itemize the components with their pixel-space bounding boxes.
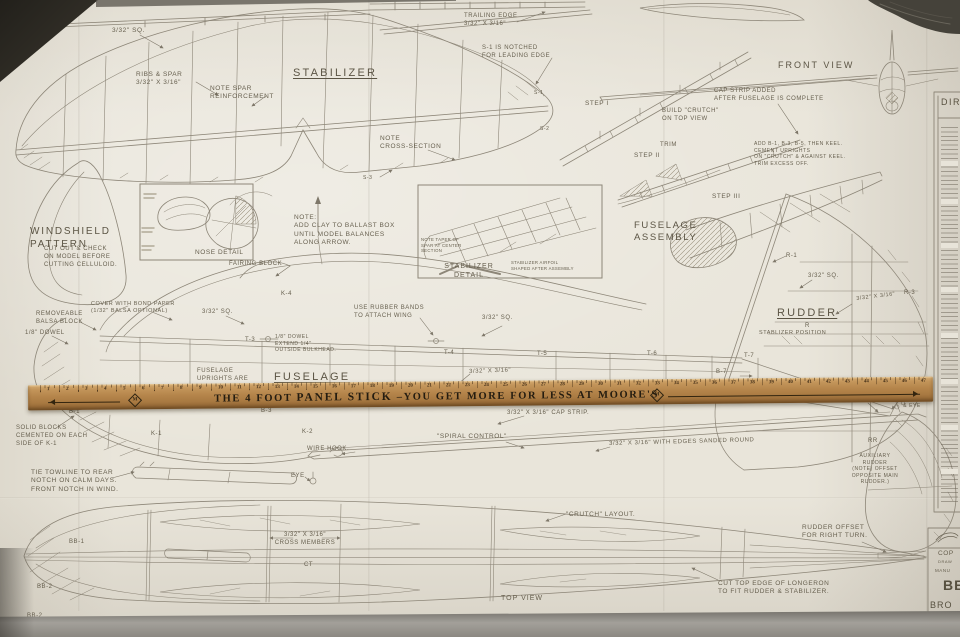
label-r3: R-3: [904, 290, 915, 298]
label-nose-detail: NOSE DETAIL: [195, 249, 244, 257]
ruler-inch-24: 24: [484, 382, 489, 387]
label-solid-blocks: SOLID BLOCKS CEMENTED ON EACH SIDE OF K-…: [16, 425, 87, 448]
ruler-brand-bold: PANEL STICK: [296, 390, 392, 403]
label-spar-reinforcement: NOTE SPAR REINFORCEMENT: [210, 85, 274, 102]
ruler-inch-12: 12: [256, 385, 261, 390]
label-b7: B-7: [716, 369, 727, 377]
ruler-inch-42: 42: [826, 379, 831, 384]
label-s1-tag: S-1: [534, 90, 543, 97]
photo-shadow-corner: [0, 548, 34, 637]
label-s1-notched: S-1 IS NOTCHED FOR LEADING EDGE: [482, 45, 550, 61]
label-cross-members: 3/32" X 3/16" CROSS MEMBERS: [273, 532, 337, 548]
ruler-inch-41: 41: [807, 379, 812, 384]
label-ribs-spar: RIBS & SPAR 3/32" X 3/16": [136, 71, 182, 88]
label-wire-hook: WIRE HOOK.: [307, 446, 349, 454]
label-cap-strip-added: CAP STRIP ADDED AFTER FUSELAGE IS COMPLE…: [714, 88, 824, 104]
label-cap-strip: 3/32" X 3/16" CAP STRIP.: [507, 410, 589, 418]
ruler-inch-3: 3: [85, 386, 88, 391]
ruler-inch-18: 18: [370, 384, 375, 389]
ruler-inch-35: 35: [693, 380, 698, 385]
label-dowel-extend: 1/8" DOWEL EXTEND 1/4" OUTSIDE BULKHEAD.: [275, 334, 336, 354]
ruler-inch-11: 11: [237, 385, 242, 390]
label-b1: B-1: [69, 409, 80, 417]
label-fairing-block: FAIRING BLOCK: [229, 261, 282, 269]
ruler-brand-suffix: –YOU GET MORE FOR LESS AT MOORE'S: [392, 389, 659, 403]
label-removable-block: REMOVEABLE BALSA BLOCK: [36, 311, 83, 327]
label-square-left: 3/32" SQ.: [202, 309, 233, 317]
label-titleblock-5: BRO: [930, 600, 953, 612]
ruler-inch-33: 33: [655, 381, 660, 386]
fuselage-belly-drawing: [60, 404, 926, 484]
label-build-crutch: BUILD "CRUTCH" ON TOP VIEW: [662, 108, 719, 124]
ruler-inch-30: 30: [598, 381, 603, 386]
label-taper-note: NOTE TAPER OF SPAR AT CENTER SECTION: [421, 237, 462, 254]
label-rubber-bands: USE RUBBER BANDS TO ATTACH WING: [354, 305, 424, 321]
label-titleblock-4: BE: [943, 576, 960, 594]
ruler-inch-20: 20: [408, 383, 413, 388]
photographed-plan: 3/32" SQ. RIBS & SPAR 3/32" X 3/16" NOTE…: [0, 0, 960, 637]
ruler-inch-21: 21: [427, 383, 432, 388]
ruler-inch-1: 1: [47, 387, 50, 392]
ruler-inch-32: 32: [636, 381, 641, 386]
label-k4: K-4: [281, 291, 292, 299]
ruler-inch-26: 26: [522, 382, 527, 387]
label-uprights: FUSELAGE UPRIGHTS ARE: [197, 368, 248, 384]
ruler-inch-17: 17: [351, 384, 356, 389]
label-aux-rudder-note: AUXILIARY RUDDER (NOTE) OFFSET OPPOSITE …: [843, 453, 907, 486]
label-top-view: TOP VIEW: [501, 594, 543, 603]
label-eye: EYE: [291, 473, 305, 481]
label-t6: T-6: [647, 351, 657, 359]
ruler-inch-19: 19: [389, 383, 394, 388]
label-rr: RR: [868, 438, 878, 446]
ruler-inch-5: 5: [123, 386, 126, 391]
directions-text-lines: [941, 127, 958, 505]
ruler-logo-right: M: [650, 388, 664, 402]
label-s3-tag: S-3: [363, 175, 372, 182]
ruler-left-arrow: [48, 401, 120, 403]
label-directions-title: DIRE: [941, 97, 960, 109]
label-fuselage-strip: 3/32" X 3/16": [469, 368, 511, 377]
ruler-inch-47: 47: [921, 378, 926, 383]
ruler-inch-10: 10: [218, 385, 223, 390]
label-airfoil-note: STABILIZER AIRFOIL SHAPED AFTER ASSEMBLY: [511, 260, 574, 271]
label-windshield-instructions: CUT OUT & CHECK ON MODEL BEFORE CUTTING …: [44, 246, 117, 269]
ruler-logo-letter: M: [131, 396, 139, 404]
label-step1: STEP I: [585, 100, 609, 108]
ruler-inch-38: 38: [750, 380, 755, 385]
label-t4: T-4: [444, 350, 454, 358]
label-crutch-layout: "CRUTCH" LAYOUT.: [566, 511, 635, 519]
label-spiral-control: "SPIRAL CONTROL": [437, 433, 507, 441]
label-k1: K-1: [151, 431, 162, 439]
label-stabilizer-title: STABILIZER: [293, 66, 377, 80]
label-cover-note: COVER WITH BOND PAPER (1/32" BALSA OPTIO…: [91, 301, 175, 315]
ruler-inch-7: 7: [161, 386, 164, 391]
ruler-inch-4: 4: [104, 386, 107, 391]
ruler-inch-22: 22: [446, 383, 451, 388]
ruler-logo-letter: M: [653, 391, 661, 399]
ruler-logo-left: M: [128, 393, 142, 407]
ruler-right-arrow: [668, 394, 920, 398]
label-ct: CT: [304, 562, 313, 570]
label-titleblock-2: DRAW: [938, 559, 952, 564]
ruler-inch-29: 29: [579, 382, 584, 387]
ruler-inch-6: 6: [142, 386, 145, 391]
label-square-right: 3/32" SQ.: [482, 315, 513, 323]
stabilizer-plan: [16, 9, 553, 184]
label-bb1: BB-1: [69, 539, 85, 547]
ruler-inch-14: 14: [294, 384, 299, 389]
ruler-inch-8: 8: [180, 385, 183, 390]
ruler-brand-prefix: THE 4 FOOT: [214, 392, 297, 404]
ruler-inch-37: 37: [731, 380, 736, 385]
label-t5: T-5: [537, 351, 547, 359]
ruler-inch-28: 28: [560, 382, 565, 387]
ruler-inch-34: 34: [674, 381, 679, 386]
ruler-inch-40: 40: [788, 380, 793, 385]
label-b3: B-3: [261, 408, 272, 416]
label-step3: STEP III: [712, 193, 740, 201]
ruler-inch-13: 13: [275, 384, 280, 389]
label-s2-tag: S-2: [540, 126, 549, 133]
label-titleblock-1: COP: [938, 550, 954, 558]
label-titleblock-3: MANU: [935, 568, 950, 574]
ruler-brand-text: THE 4 FOOT PANEL STICK –YOU GET MORE FOR…: [214, 388, 659, 404]
label-ballast-note: NOTE: ADD CLAY TO BALLAST BOX UNTIL MODE…: [294, 214, 395, 248]
label-fuselage-assembly: FUSELAGE ASSEMBLY: [634, 220, 697, 245]
ruler-inch-27: 27: [541, 382, 546, 387]
label-towline: TIE TOWLINE TO REAR NOTCH ON CALM DAYS. …: [31, 469, 118, 494]
ruler-inch-16: 16: [332, 384, 337, 389]
ruler-inch-46: 46: [902, 378, 907, 383]
ruler-inch-23: 23: [465, 383, 470, 388]
ruler-inch-39: 39: [769, 380, 774, 385]
label-t3: T-3: [245, 337, 255, 345]
label-r1: R-1: [786, 253, 797, 261]
ruler-inch-9: 9: [199, 385, 202, 390]
label-k2: K-2: [302, 429, 313, 437]
ruler-inch-15: 15: [313, 384, 318, 389]
ruler-inch-25: 25: [503, 382, 508, 387]
label-rudder-square: 3/32" SQ.: [808, 273, 839, 281]
label-rudder-title: RUDDER: [777, 306, 837, 320]
ruler-inch-43: 43: [845, 379, 850, 384]
label-trailing-edge: TRAILING EDGE 3/32" X 3/16": [464, 13, 518, 29]
label-cut-longeron: CUT TOP EDGE OF LONGERON TO FIT RUDDER &…: [718, 580, 829, 597]
dark-silhouette-photo: [868, 0, 960, 34]
label-keel-note: ADD B-1, B-3, B-5, THEN KEEL. CEMENT UPR…: [754, 141, 846, 167]
label-step2: STEP II: [634, 152, 660, 160]
label-stab-square: 3/32" SQ.: [112, 27, 145, 35]
ruler-inch-44: 44: [864, 379, 869, 384]
label-dowel: 1/8" DOWEL: [25, 330, 65, 338]
label-rudder-offset: RUDDER OFFSET FOR RIGHT TURN.: [802, 524, 867, 541]
label-front-view: FRONT VIEW: [778, 60, 854, 72]
label-stabilizer-position: STABLIZER POSITION: [759, 330, 826, 337]
label-cross-section: NOTE CROSS-SECTION: [380, 135, 441, 152]
ruler-inch-31: 31: [617, 381, 622, 386]
ruler-inch-2: 2: [66, 386, 69, 391]
label-trim: TRIM: [660, 142, 677, 150]
label-t7: T-7: [744, 353, 754, 361]
label-stab-detail: STABILIZER DETAIL: [443, 262, 495, 280]
label-bb2: BB-2: [37, 584, 53, 592]
ruler-inch-36: 36: [712, 380, 717, 385]
ruler-inch-45: 45: [883, 379, 888, 384]
